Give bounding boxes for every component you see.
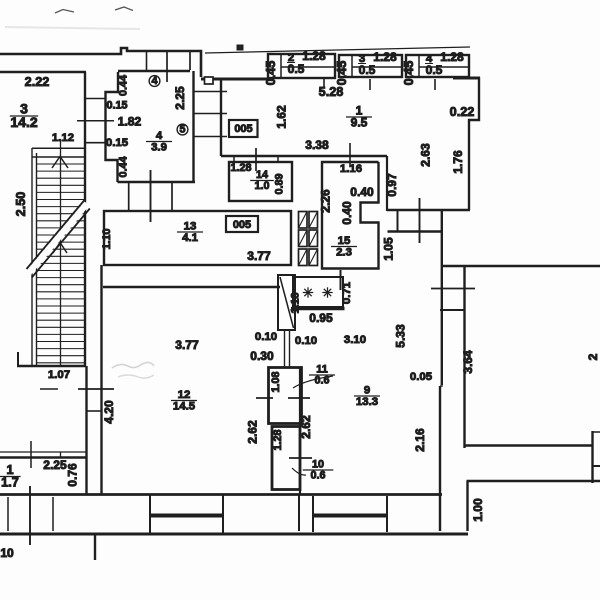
svg-text:0.05: 0.05 xyxy=(410,371,433,383)
svg-text:3.77: 3.77 xyxy=(247,249,271,263)
svg-text:2.3: 2.3 xyxy=(336,247,352,259)
svg-text:1.28: 1.28 xyxy=(373,50,397,64)
svg-text:0.15: 0.15 xyxy=(106,100,127,112)
svg-text:0.95: 0.95 xyxy=(309,311,333,325)
svg-text:1.00: 1.00 xyxy=(471,498,485,522)
svg-text:1.7: 1.7 xyxy=(1,476,19,490)
svg-text:4: 4 xyxy=(156,130,163,142)
svg-text:1.62: 1.62 xyxy=(275,105,289,129)
svg-text:1.76: 1.76 xyxy=(451,150,465,174)
svg-text:1.05: 1.05 xyxy=(382,237,396,261)
svg-text:13.3: 13.3 xyxy=(356,396,378,408)
svg-text:0.71: 0.71 xyxy=(341,281,353,304)
svg-text:3.9: 3.9 xyxy=(151,142,167,154)
svg-text:14.2: 14.2 xyxy=(10,114,37,130)
svg-text:0.22: 0.22 xyxy=(450,105,475,119)
svg-text:2.62: 2.62 xyxy=(246,420,260,444)
svg-text:3.10: 3.10 xyxy=(344,334,366,346)
svg-text:2.63: 2.63 xyxy=(419,143,433,167)
svg-text:1.10: 1.10 xyxy=(0,546,14,560)
svg-text:0.45: 0.45 xyxy=(402,61,416,86)
svg-text:0.44: 0.44 xyxy=(118,156,130,177)
svg-text:0.5: 0.5 xyxy=(359,63,376,77)
svg-text:005: 005 xyxy=(234,123,252,135)
svg-text:1.13: 1.13 xyxy=(290,292,302,313)
svg-text:2: 2 xyxy=(586,353,600,360)
svg-text:5: 5 xyxy=(179,124,185,136)
svg-text:4: 4 xyxy=(151,75,157,87)
svg-text:0.5: 0.5 xyxy=(426,63,443,77)
svg-text:3.64: 3.64 xyxy=(461,350,475,374)
svg-text:1.0: 1.0 xyxy=(254,180,269,192)
svg-text:0.10: 0.10 xyxy=(295,335,317,347)
svg-text:0.76: 0.76 xyxy=(66,463,80,487)
svg-text:2.22: 2.22 xyxy=(25,75,50,89)
svg-text:5.33: 5.33 xyxy=(394,324,408,348)
svg-text:5.28: 5.28 xyxy=(319,85,344,99)
svg-text:0.45: 0.45 xyxy=(335,61,349,86)
svg-text:1.28: 1.28 xyxy=(230,162,251,174)
svg-text:9.5: 9.5 xyxy=(351,116,368,130)
svg-text:1.07: 1.07 xyxy=(48,369,70,381)
svg-text:2.25: 2.25 xyxy=(173,86,187,110)
svg-text:0.5: 0.5 xyxy=(288,62,305,76)
svg-text:1.82: 1.82 xyxy=(118,115,142,129)
svg-text:0.40: 0.40 xyxy=(350,185,374,199)
svg-text:2.26: 2.26 xyxy=(319,189,333,213)
svg-text:0.89: 0.89 xyxy=(274,173,286,194)
svg-text:0.30: 0.30 xyxy=(250,349,274,363)
svg-text:12: 12 xyxy=(178,389,191,401)
svg-text:15: 15 xyxy=(338,235,351,247)
svg-text:0.15: 0.15 xyxy=(106,137,129,149)
svg-text:13: 13 xyxy=(184,221,197,233)
svg-text:0.44: 0.44 xyxy=(118,75,130,96)
svg-text:2.62: 2.62 xyxy=(299,415,313,439)
svg-text:0.45: 0.45 xyxy=(264,61,278,86)
svg-text:1.28: 1.28 xyxy=(272,429,284,450)
svg-text:2.50: 2.50 xyxy=(14,192,28,217)
svg-text:1.28: 1.28 xyxy=(440,50,464,64)
svg-text:2.16: 2.16 xyxy=(413,428,427,452)
svg-text:005: 005 xyxy=(233,219,251,231)
svg-text:1.12: 1.12 xyxy=(52,132,74,144)
svg-text:3.77: 3.77 xyxy=(175,338,199,352)
svg-text:14.5: 14.5 xyxy=(173,401,196,413)
svg-text:3.38: 3.38 xyxy=(305,138,329,152)
svg-text:1.08: 1.08 xyxy=(270,371,282,392)
svg-text:1.16: 1.16 xyxy=(340,163,362,175)
svg-text:0.10: 0.10 xyxy=(255,331,277,343)
svg-text:0.40: 0.40 xyxy=(340,201,354,225)
svg-text:4.20: 4.20 xyxy=(102,400,116,424)
svg-text:0.6: 0.6 xyxy=(310,470,325,482)
svg-text:9: 9 xyxy=(364,385,370,397)
svg-text:1.10: 1.10 xyxy=(101,228,113,249)
svg-text:1.28: 1.28 xyxy=(302,49,326,63)
svg-text:2.25: 2.25 xyxy=(43,458,67,472)
svg-text:4.1: 4.1 xyxy=(182,232,198,244)
